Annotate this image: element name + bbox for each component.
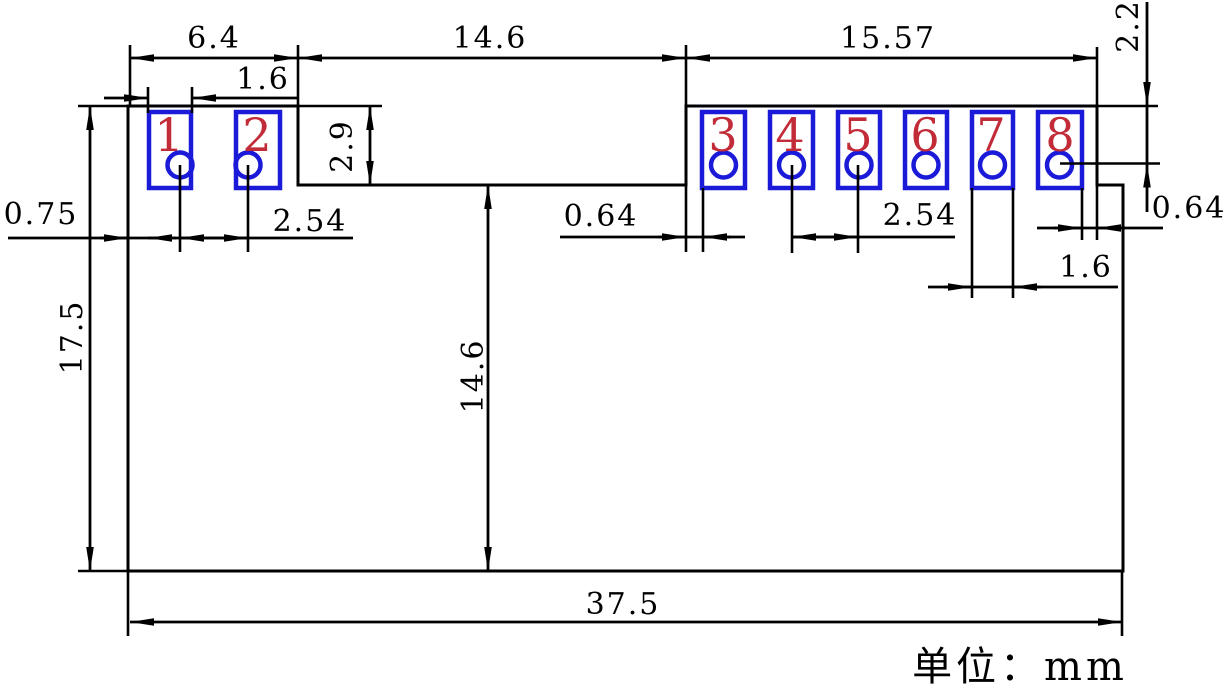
dim-label: 1.6: [236, 62, 290, 97]
pad-number: 8: [1045, 108, 1074, 162]
drawing-svg: 1 2 3 4 5 6 7 8 6.4: [0, 0, 1225, 692]
dim-label: 2.2: [1111, 0, 1146, 53]
dim-label: 17.5: [55, 300, 90, 375]
pad-number: 2: [242, 108, 271, 162]
pad-number: 7: [976, 108, 1005, 162]
dim-label: 0.64: [564, 199, 639, 234]
unit-note: 单位：mm: [912, 644, 1128, 690]
pad-number: 1: [154, 108, 183, 162]
dim-hole-pitch-left: 2.54: [180, 204, 347, 239]
dim-label: 14.6: [453, 21, 528, 56]
dim-hole-pitch-right: 2.54: [792, 198, 957, 237]
dim-pad1-width: 1.6: [104, 62, 298, 98]
dim-label: 14.6: [456, 339, 491, 414]
dim-overall-width: 37.5: [130, 587, 1122, 622]
technical-drawing: 1 2 3 4 5 6 7 8 6.4: [0, 0, 1225, 692]
pad-number: 3: [708, 108, 737, 162]
dim-overall-height: 17.5: [55, 106, 90, 571]
dim-middle-notch-width: 14.6: [298, 21, 686, 58]
dim-label: 15.57: [840, 21, 936, 56]
dim-label: 1.6: [1059, 250, 1113, 285]
dim-label: 0.64: [1152, 191, 1225, 226]
dim-pad7-width: 1.6: [928, 250, 1118, 287]
dim-label: 6.4: [187, 21, 241, 56]
dim-right-block-width: 15.57: [686, 21, 1097, 58]
dim-left-block-width: 6.4: [130, 21, 298, 58]
dim-label: 2.54: [273, 204, 348, 239]
dim-right-block-edge-to-pad3: 0.64: [560, 199, 745, 237]
pad-numbers: 1 2 3 4 5 6 7 8: [154, 108, 1074, 162]
dim-pad8-to-right-edge: 0.64: [1037, 191, 1225, 228]
dimensions: 6.4 14.6 15.57 1.6 2.9 2.2: [4, 0, 1225, 622]
dim-label: 0.75: [4, 197, 79, 232]
dim-notch-depth: 2.9: [325, 106, 370, 185]
dim-label: 2.9: [325, 119, 360, 173]
dim-body-height-below-notch: 14.6: [456, 185, 491, 571]
pad-number: 6: [910, 108, 939, 162]
pad-number: 5: [843, 108, 872, 162]
pads-group: [149, 112, 1082, 188]
pad-number: 4: [775, 108, 804, 162]
dim-label: 37.5: [586, 587, 661, 622]
dim-label: 2.54: [883, 198, 958, 233]
